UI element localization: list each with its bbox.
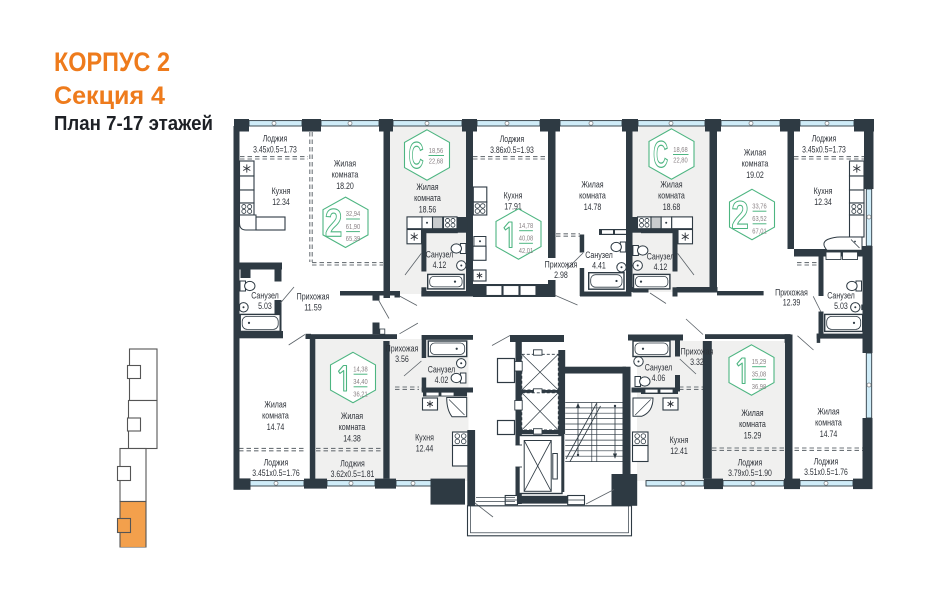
svg-text:Лоджия: Лоджия [340,459,365,469]
svg-text:5.03: 5.03 [258,301,272,311]
svg-text:Лоджия: Лоджия [812,134,837,144]
svg-text:4.12: 4.12 [654,262,668,272]
svg-text:33,76: 33,76 [752,201,766,210]
svg-text:67,01: 67,01 [752,226,766,235]
svg-text:3.79х0.5=1.90: 3.79х0.5=1.90 [728,468,772,478]
svg-text:Жилая: Жилая [660,180,682,190]
svg-text:14.38: 14.38 [343,433,361,443]
svg-text:12.44: 12.44 [416,444,434,454]
svg-text:36,21: 36,21 [353,389,367,398]
svg-text:Лоджия: Лоджия [738,458,763,468]
svg-text:Жилая: Жилая [264,400,286,410]
svg-text:34,40: 34,40 [353,377,367,386]
svg-text:Жилая: Жилая [817,407,839,417]
svg-text:18.20: 18.20 [336,181,354,191]
svg-text:Жилая: Жилая [741,408,763,418]
svg-text:22,68: 22,68 [429,157,443,166]
svg-text:Кухня: Кухня [272,186,291,196]
svg-text:5.03: 5.03 [834,301,848,311]
svg-text:Жилая: Жилая [744,148,766,158]
svg-text:Кухня: Кухня [670,435,689,445]
svg-text:14,38: 14,38 [353,364,367,373]
svg-text:Санузел: Санузел [827,291,855,301]
svg-text:Лоджия: Лоджия [500,134,525,144]
svg-text:40,08: 40,08 [519,234,533,243]
svg-text:Кухня: Кухня [504,191,523,201]
svg-text:Санузел: Санузел [428,365,456,375]
svg-text:комната: комната [414,193,441,203]
svg-text:Санузел: Санузел [647,252,675,262]
svg-text:Санузел: Санузел [585,250,613,260]
svg-text:комната: комната [332,170,359,180]
svg-text:15,29: 15,29 [752,357,766,366]
svg-text:18,56: 18,56 [429,146,443,155]
svg-text:12.41: 12.41 [670,446,688,456]
svg-text:3.56: 3.56 [395,354,409,364]
svg-text:Жилая: Жилая [416,182,438,192]
svg-text:Секция 4: Секция 4 [54,82,165,110]
svg-text:Прихожая: Прихожая [681,347,714,357]
svg-text:18,68: 18,68 [673,145,687,154]
svg-text:Лоджия: Лоджия [814,457,839,467]
svg-text:3.32: 3.32 [690,357,704,367]
svg-text:Кухня: Кухня [415,433,434,443]
svg-text:14,78: 14,78 [519,221,533,230]
svg-text:Санузел: Санузел [645,363,673,373]
svg-text:14.74: 14.74 [267,422,285,432]
svg-text:Лоджия: Лоджия [263,134,288,144]
svg-text:11.59: 11.59 [304,303,322,313]
svg-text:36,98: 36,98 [752,382,766,391]
svg-text:42,01: 42,01 [519,246,533,255]
svg-text:4.12: 4.12 [433,260,447,270]
svg-text:3.451х0.5=1.76: 3.451х0.5=1.76 [252,468,300,478]
svg-text:КОРПУС 2: КОРПУС 2 [54,47,170,77]
svg-text:4.41: 4.41 [592,261,606,271]
svg-text:22,80: 22,80 [673,156,687,165]
svg-text:3.45х0.5=1.73: 3.45х0.5=1.73 [802,145,846,155]
svg-text:19.02: 19.02 [746,170,764,180]
svg-text:3.62х0.5=1.81: 3.62х0.5=1.81 [331,469,375,479]
svg-text:План 7-17 этажей: План 7-17 этажей [54,113,213,135]
svg-text:комната: комната [579,191,606,201]
svg-text:4.02: 4.02 [435,375,449,385]
svg-text:4.06: 4.06 [652,373,666,383]
svg-text:61,90: 61,90 [346,222,360,231]
svg-text:35,08: 35,08 [752,370,766,379]
svg-text:12.39: 12.39 [783,298,801,308]
svg-text:Прихожая: Прихожая [386,344,419,354]
svg-text:Санузел: Санузел [426,250,454,260]
svg-text:комната: комната [815,418,842,428]
svg-text:Кухня: Кухня [814,186,833,196]
svg-text:14.74: 14.74 [820,429,838,439]
svg-text:2.98: 2.98 [554,270,568,280]
svg-text:комната: комната [262,411,289,421]
svg-text:3.86х0.5=1.93: 3.86х0.5=1.93 [490,145,534,155]
svg-text:12.34: 12.34 [814,197,832,207]
svg-text:3.51х0.5=1.76: 3.51х0.5=1.76 [804,467,848,477]
svg-text:Прихожая: Прихожая [545,260,578,270]
svg-text:комната: комната [742,159,769,169]
svg-text:комната: комната [339,422,366,432]
svg-text:комната: комната [658,191,685,201]
svg-text:32,94: 32,94 [346,209,360,218]
svg-text:Жилая: Жилая [341,411,363,421]
svg-text:Жилая: Жилая [334,159,356,169]
svg-text:Прихожая: Прихожая [297,292,330,302]
svg-text:65,39: 65,39 [346,234,360,243]
svg-text:18.68: 18.68 [663,202,681,212]
svg-text:12.34: 12.34 [272,197,290,207]
svg-text:Прихожая: Прихожая [775,288,808,298]
svg-text:комната: комната [739,419,766,429]
svg-text:Санузел: Санузел [251,291,279,301]
svg-text:Лоджия: Лоджия [264,458,289,468]
svg-text:Жилая: Жилая [581,180,603,190]
svg-text:3.45х0.5=1.73: 3.45х0.5=1.73 [253,145,297,155]
svg-text:15.29: 15.29 [744,430,762,440]
svg-text:63,52: 63,52 [752,214,766,223]
svg-text:18.56: 18.56 [419,204,437,214]
svg-text:14.78: 14.78 [584,202,602,212]
